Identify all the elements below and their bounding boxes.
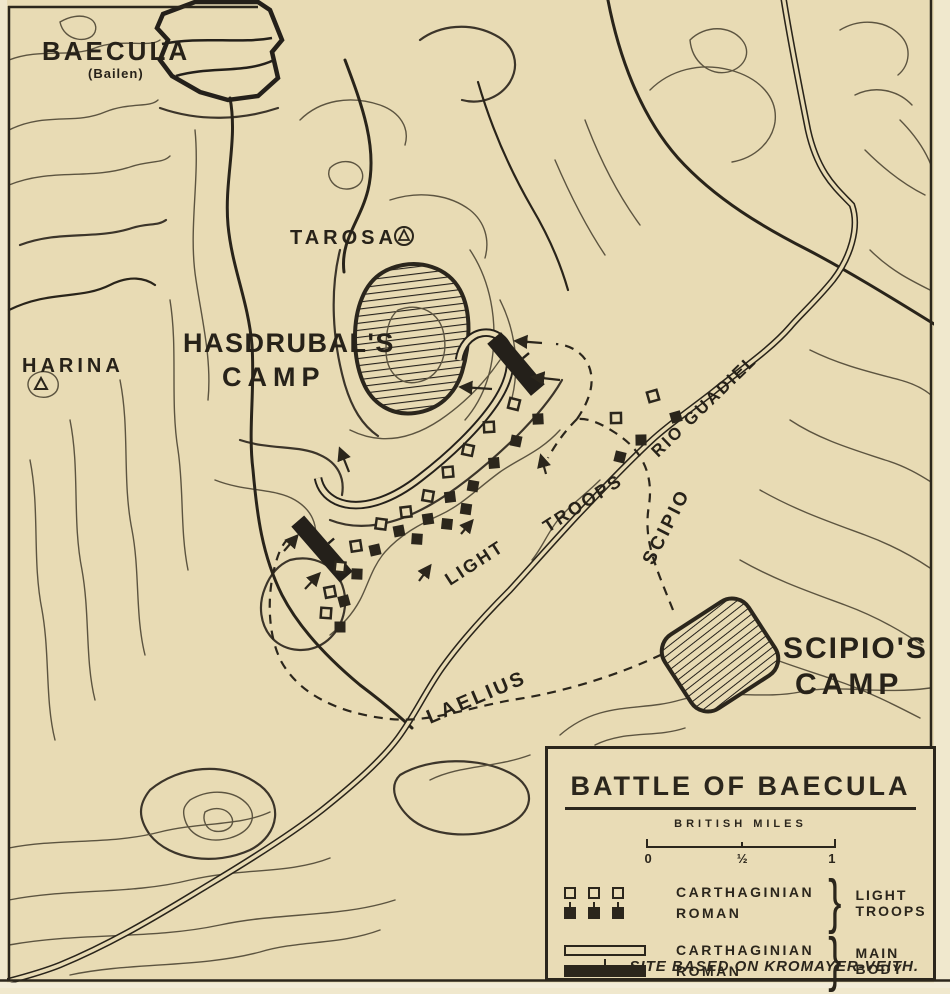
roman-light-icon [612,907,624,919]
troop-marker [508,398,520,410]
carthaginian-light-icon [612,887,624,899]
legend-footnote: SITE BASED ON KROMAYER-VEITH. [629,958,919,975]
legend-name: CARTHAGINIAN [676,882,814,903]
scale-number-1: 1 [828,851,835,866]
roman-light-icon [588,907,600,919]
scipios-camp-label-1: SCIPIO'S [783,632,928,665]
carthaginian-light-icon [588,887,600,899]
baecula-label: BAECULA [42,36,190,66]
troop-marker [422,490,434,502]
troop-marker [484,422,495,433]
troop-marker [635,434,646,445]
scale-tick-0 [646,839,648,848]
troop-marker [509,434,522,447]
carthaginian-main-body-icon [564,945,646,956]
troop-marker [532,413,544,425]
troop-marker [335,622,346,633]
carthaginian-light-icon [564,887,576,899]
troop-marker [611,413,621,423]
scale-number-half: ½ [737,851,748,866]
legend-row-light-troops: CARTHAGINIAN ROMAN } LIGHT TROOPS [564,880,933,925]
troop-marker [460,503,472,515]
scale-tick-1 [834,839,836,848]
troop-marker [393,525,406,538]
troop-marker [647,390,659,402]
legend-name: ROMAN [676,903,814,924]
troop-marker [324,586,336,598]
troop-marker [443,467,454,478]
troop-marker [422,513,435,526]
troop-marker [488,457,500,469]
troop-marker [335,562,346,573]
scale-tick-half [741,842,743,848]
troop-marker [441,518,453,530]
light-troops-symbols [564,887,664,919]
hasdrubals-camp-label-2: CAMP [222,362,326,392]
scale-bar: 0 ½ 1 [646,838,836,864]
legend-title: BATTLE OF BAECULA [565,771,917,810]
roman-light-icon [564,907,576,919]
troop-marker [400,506,411,517]
troop-marker [321,608,332,619]
scale-number-0: 0 [645,851,652,866]
troop-marker [467,480,480,493]
scipios-camp-label-2: CAMP [795,668,903,701]
troop-marker [411,533,423,545]
scale-units-label: BRITISH MILES [548,818,933,830]
legend-group-label: LIGHT TROOPS [855,887,933,919]
troop-marker [462,444,474,456]
baecula-sublabel: (Bailen) [88,66,144,81]
troop-marker [351,568,362,579]
troop-marker [350,540,361,551]
harina-label: HARINA [22,355,124,377]
tarosa-label: TAROSA [290,227,397,249]
hasdrubals-camp-label-1: HASDRUBAL'S [183,328,395,358]
legend-box: BATTLE OF BAECULA BRITISH MILES 0 ½ 1 [545,746,936,981]
troop-marker [375,518,386,529]
troop-marker [444,491,456,503]
